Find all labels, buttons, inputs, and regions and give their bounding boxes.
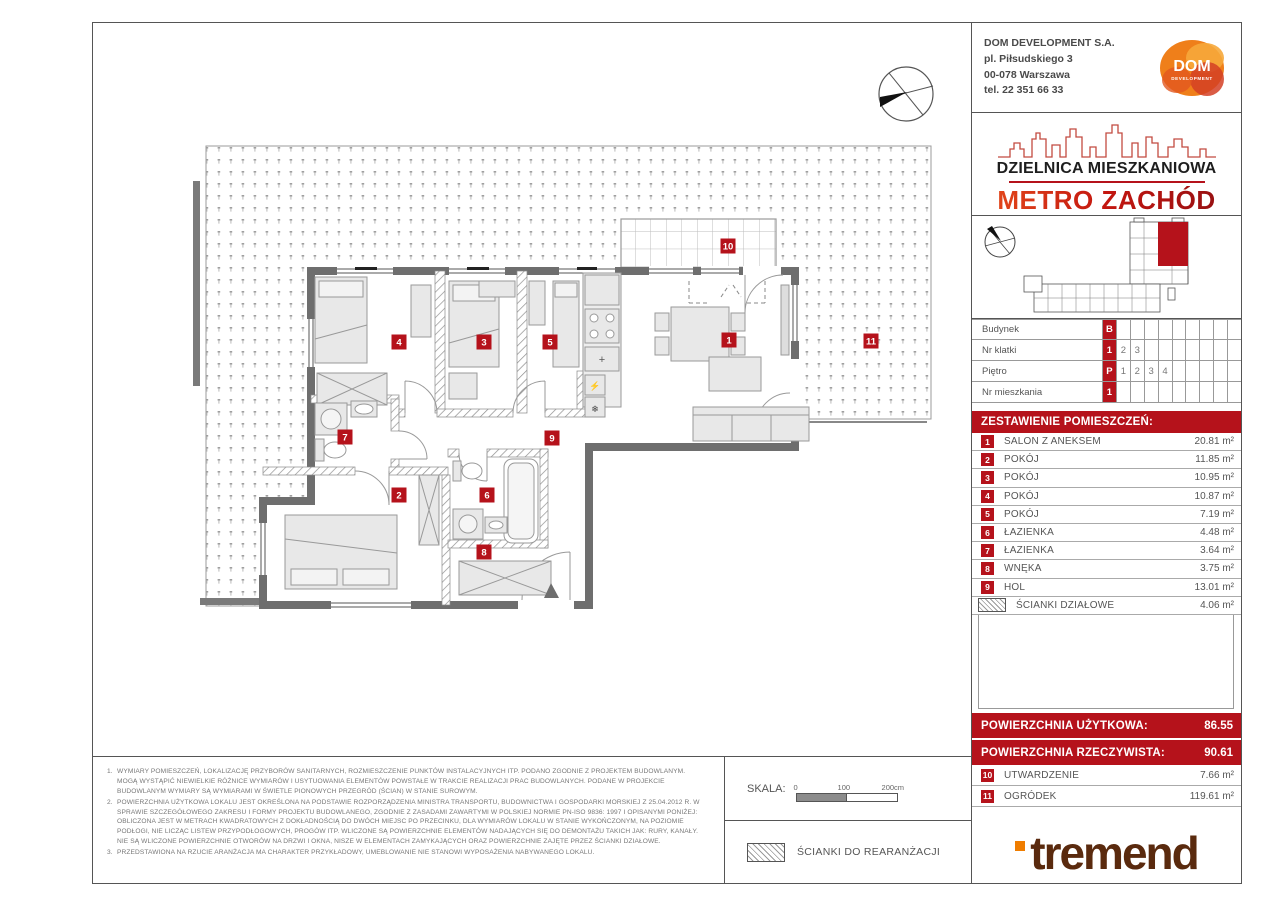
scale-tick-0: 0 xyxy=(794,783,798,792)
info-cell xyxy=(1159,340,1173,360)
info-cell xyxy=(1228,361,1241,381)
room-area: 20.81 m² xyxy=(1195,436,1241,447)
info-cell xyxy=(1131,382,1145,402)
actual-area-value: 90.61 xyxy=(1204,747,1233,759)
svg-text:❄: ❄ xyxy=(591,404,599,414)
actual-area-bar: POWIERZCHNIA RZECZYWISTA: 90.61 xyxy=(972,740,1241,765)
info-cell: 2 xyxy=(1131,361,1145,381)
svg-text:8: 8 xyxy=(481,548,486,559)
room-name: POKÓJ xyxy=(994,472,1195,483)
info-row-0: BudynekB xyxy=(972,319,1241,340)
svg-text:DOM: DOM xyxy=(1173,58,1210,75)
compass-icon xyxy=(879,67,933,121)
svg-text:5: 5 xyxy=(547,338,553,349)
info-cell: 1 xyxy=(1103,382,1117,402)
district-title: DZIELNICA MIESZKANIOWA xyxy=(972,160,1241,178)
room-number-badge: 2 xyxy=(981,453,994,466)
room-area: 4.06 m² xyxy=(1200,600,1241,611)
svg-text:6: 6 xyxy=(484,491,489,502)
room-area: 3.64 m² xyxy=(1200,545,1241,556)
room-row: 7ŁAZIENKA3.64 m² xyxy=(972,542,1241,560)
info-cell xyxy=(1228,320,1241,339)
info-cell xyxy=(1173,361,1187,381)
dom-development-logo: DOM DEVELOPMENT xyxy=(1157,36,1227,100)
room-number-badge: 3 xyxy=(981,471,994,484)
room-name: ŁAZIENKA xyxy=(994,545,1200,556)
info-cell xyxy=(1228,382,1241,402)
info-cell: 1 xyxy=(1117,361,1131,381)
room-row: ŚCIANKI DZIAŁOWE4.06 m² xyxy=(972,597,1241,615)
floor-plan-drawing: + ⚡ ❄ xyxy=(93,23,971,756)
info-cell xyxy=(1173,320,1187,339)
siteplan-block xyxy=(972,216,1241,319)
footnote-3: 3.PRZEDSTAWIONA NA RZUCIE ARANŻACJA MA C… xyxy=(107,848,716,858)
brand-divider xyxy=(1009,181,1205,183)
info-cell: B xyxy=(1103,320,1117,339)
room-row: 2POKÓJ11.85 m² xyxy=(972,451,1241,469)
info-cell xyxy=(1214,382,1228,402)
room-number-badge: 11 xyxy=(981,790,994,803)
room-area: 7.19 m² xyxy=(1200,509,1241,520)
room-number-badge: 9 xyxy=(981,581,994,594)
info-cell xyxy=(1145,340,1159,360)
info-row-label: Nr klatki xyxy=(972,340,1103,360)
rearrangeable-walls-legend: ŚCIANKI DO REARANŻACJI xyxy=(725,821,971,883)
info-cell xyxy=(1214,320,1228,339)
siteplan-map xyxy=(1024,218,1188,312)
paved-terrace xyxy=(621,219,776,271)
room-row: 5POKÓJ7.19 m² xyxy=(972,506,1241,524)
info-cell xyxy=(1214,361,1228,381)
info-cell xyxy=(1200,382,1214,402)
room-area: 4.48 m² xyxy=(1200,527,1241,538)
company-name: DOM DEVELOPMENT S.A. xyxy=(984,36,1157,52)
room-number-badge: 1 xyxy=(981,435,994,448)
room-number-badge: 5 xyxy=(981,508,994,521)
info-cell xyxy=(1186,320,1200,339)
svg-text:2: 2 xyxy=(396,491,401,502)
usable-area-value: 86.55 xyxy=(1204,720,1233,732)
svg-text:4: 4 xyxy=(396,338,402,349)
room-row: 4POKÓJ10.87 m² xyxy=(972,488,1241,506)
room-row: 11OGRÓDEK119.61 m² xyxy=(972,786,1241,807)
info-cell xyxy=(1228,340,1241,360)
info-cell: 3 xyxy=(1145,361,1159,381)
room-name: SALON Z ANEKSEM xyxy=(994,436,1195,447)
company-address1: pl. Piłsudskiego 3 xyxy=(984,52,1157,68)
footnotes: 1.WYMIARY POMIESZCZEŃ, LOKALIZACJĘ PRZYB… xyxy=(93,756,724,883)
room-row: 10UTWARDZENIE7.66 m² xyxy=(972,765,1241,786)
tremend-logo: tremend xyxy=(972,823,1241,883)
svg-text:+: + xyxy=(599,354,605,366)
tremend-logo-square xyxy=(1015,841,1025,851)
brochure-page: + ⚡ ❄ xyxy=(92,22,1242,884)
room-name: POKÓJ xyxy=(994,491,1195,502)
info-cell xyxy=(1117,382,1131,402)
info-cell xyxy=(1173,340,1187,360)
sidebar: DOM DEVELOPMENT S.A. pl. Piłsudskiego 3 … xyxy=(971,23,1241,883)
room-number-badge: 4 xyxy=(981,490,994,503)
info-cell: 3 xyxy=(1131,340,1145,360)
info-cell xyxy=(1159,382,1173,402)
info-cell xyxy=(1131,320,1145,339)
rooms-table-empty-box xyxy=(978,615,1234,709)
info-cell xyxy=(1159,320,1173,339)
footnote-1: 1.WYMIARY POMIESZCZEŃ, LOKALIZACJĘ PRZYB… xyxy=(107,767,716,797)
info-row-1: Nr klatki123 xyxy=(972,340,1241,361)
room-row: 8WNĘKA3.75 m² xyxy=(972,560,1241,578)
info-cell xyxy=(1117,320,1131,339)
info-row-3: Nr mieszkania1 xyxy=(972,382,1241,403)
room-name: ŁAZIENKA xyxy=(994,527,1200,538)
room-name: UTWARDZENIE xyxy=(994,770,1200,781)
svg-text:1: 1 xyxy=(726,336,732,347)
info-row-label: Budynek xyxy=(972,320,1103,339)
tremend-logo-text: tremend xyxy=(1030,830,1197,876)
room-row: 6ŁAZIENKA4.48 m² xyxy=(972,524,1241,542)
room-area: 3.75 m² xyxy=(1200,563,1241,574)
svg-text:3: 3 xyxy=(481,338,486,349)
room-area: 7.66 m² xyxy=(1200,770,1241,781)
info-cell xyxy=(1214,340,1228,360)
room-number-badge: 8 xyxy=(981,562,994,575)
info-cell xyxy=(1200,361,1214,381)
scale-cell: SKALA: 0 100 200cm xyxy=(725,757,971,821)
room-area: 10.87 m² xyxy=(1195,491,1241,502)
room-number-badge: 10 xyxy=(981,769,994,782)
scale-tick-100: 100 xyxy=(838,783,851,792)
scale-bar: 0 100 200cm xyxy=(796,783,898,802)
info-cell: 1 xyxy=(1103,340,1117,360)
company-address2: 00-078 Warszawa xyxy=(984,68,1157,84)
info-cell xyxy=(1186,361,1200,381)
room-name: POKÓJ xyxy=(994,454,1195,465)
skyline-graphic xyxy=(994,117,1220,159)
room-name: WNĘKA xyxy=(994,563,1200,574)
actual-area-label: POWIERZCHNIA RZECZYWISTA: xyxy=(981,747,1165,759)
svg-text:7: 7 xyxy=(342,433,347,444)
usable-area-label: POWIERZCHNIA UŻYTKOWA: xyxy=(981,720,1148,732)
usable-area-bar: POWIERZCHNIA UŻYTKOWA: 86.55 xyxy=(972,713,1241,738)
room-area: 10.95 m² xyxy=(1195,472,1241,483)
company-block: DOM DEVELOPMENT S.A. pl. Piłsudskiego 3 … xyxy=(972,23,1241,113)
room-row: 9HOL13.01 m² xyxy=(972,579,1241,597)
info-cell: 2 xyxy=(1117,340,1131,360)
room-number-badge: 7 xyxy=(981,544,994,557)
info-cell xyxy=(1145,320,1159,339)
room-row: 1SALON Z ANEKSEM20.81 m² xyxy=(972,433,1241,451)
hatch-swatch xyxy=(747,843,785,862)
info-cell xyxy=(1173,382,1187,402)
scale-legend-panel: SKALA: 0 100 200cm ŚCIANKI DO REARANŻACJ… xyxy=(724,756,971,883)
svg-text:9: 9 xyxy=(549,434,554,445)
footnote-2: 2.POWIERZCHNIA UŻYTKOWA LOKALU JEST OKRE… xyxy=(107,798,716,847)
rooms-table: 1SALON Z ANEKSEM20.81 m²2POKÓJ11.85 m²3P… xyxy=(972,433,1241,615)
info-row-label: Piętro xyxy=(972,361,1103,381)
scale-label: SKALA: xyxy=(747,783,786,795)
brand-block: DZIELNICA MIESZKANIOWA METRO ZACHÓD xyxy=(972,113,1241,216)
legend-label: ŚCIANKI DO REARANŻACJI xyxy=(797,846,940,858)
info-cell: 4 xyxy=(1159,361,1173,381)
floor-plan-area: + ⚡ ❄ xyxy=(93,23,971,756)
room-area: 13.01 m² xyxy=(1195,582,1241,593)
svg-text:10: 10 xyxy=(723,242,734,253)
svg-text:DEVELOPMENT: DEVELOPMENT xyxy=(1171,76,1213,81)
room-area: 119.61 m² xyxy=(1190,791,1241,802)
svg-text:⚡: ⚡ xyxy=(589,380,600,392)
svg-text:11: 11 xyxy=(866,337,877,348)
info-cell xyxy=(1200,340,1214,360)
unit-info-table: BudynekBNr klatki123PiętroP1234Nr mieszk… xyxy=(972,319,1241,403)
siteplan-compass-icon xyxy=(985,226,1015,257)
partition-swatch xyxy=(978,598,1006,612)
room-number-badge: 6 xyxy=(981,526,994,539)
info-cell xyxy=(1186,340,1200,360)
room-name: ŚCIANKI DZIAŁOWE xyxy=(1006,600,1200,611)
room-name: OGRÓDEK xyxy=(994,791,1190,802)
info-row-label: Nr mieszkania xyxy=(972,382,1103,402)
info-cell xyxy=(1145,382,1159,402)
project-title: METRO ZACHÓD xyxy=(972,185,1241,216)
company-phone: tel. 22 351 66 33 xyxy=(984,83,1157,99)
room-row: 3POKÓJ10.95 m² xyxy=(972,469,1241,487)
room-area: 11.85 m² xyxy=(1195,454,1241,465)
scale-tick-200: 200cm xyxy=(882,783,905,792)
info-cell xyxy=(1200,320,1214,339)
info-row-2: PiętroP1234 xyxy=(972,361,1241,382)
outdoor-table: 10UTWARDZENIE7.66 m²11OGRÓDEK119.61 m² xyxy=(972,765,1241,807)
rooms-table-header: ZESTAWIENIE POMIESZCZEŃ: xyxy=(972,411,1241,433)
room-name: HOL xyxy=(994,582,1195,593)
info-cell xyxy=(1186,382,1200,402)
info-cell: P xyxy=(1103,361,1117,381)
room-name: POKÓJ xyxy=(994,509,1200,520)
